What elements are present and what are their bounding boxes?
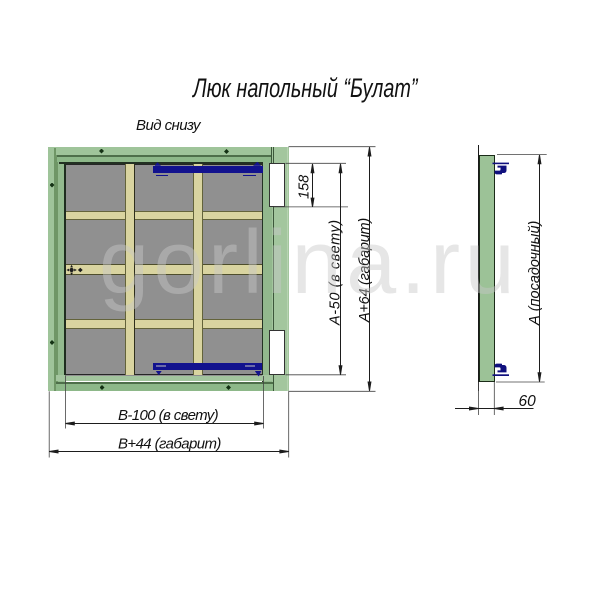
svg-text:В+44 (габарит): В+44 (габарит)	[118, 435, 221, 452]
svg-text:158: 158	[297, 175, 313, 199]
svg-text:А (посадочный): А (посадочный)	[527, 221, 543, 326]
svg-text:В-100 (в свету): В-100 (в свету)	[118, 407, 219, 424]
svg-text:60: 60	[519, 393, 537, 410]
